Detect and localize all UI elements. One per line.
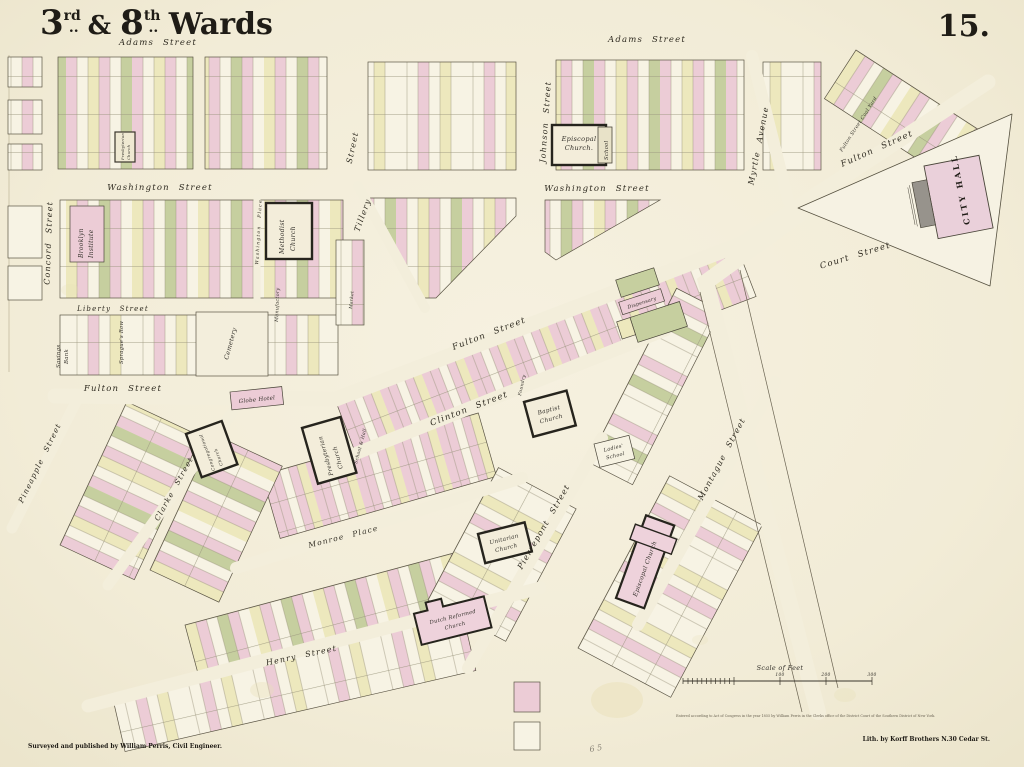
copyright-line: Entered according to Act of Congress in … (676, 714, 935, 718)
episcopal-church-north-label2: Church. (565, 144, 593, 152)
methodist-church-building (266, 203, 312, 259)
brooklyn-institute-label2: Institute (88, 229, 95, 259)
scale-tick-100: 100 (775, 673, 784, 678)
street-label-washington-west: Washington Street (107, 183, 212, 193)
street-label-liberty: Liberty Street (76, 305, 149, 313)
title-part: 8 (120, 3, 144, 43)
scale-label: Scale of Feet (757, 664, 804, 672)
city-block (8, 266, 42, 300)
city-block (368, 62, 516, 170)
lot (514, 682, 540, 712)
title-part: Wards (158, 7, 273, 42)
title-part: .. (69, 20, 79, 36)
title-part: & (79, 11, 121, 41)
city-block (8, 144, 42, 170)
methodist-church-label2: Church (290, 226, 297, 251)
spragues-row-label: Sprague's Row (119, 320, 125, 364)
street-label-washington-east: Washington Street (544, 184, 649, 194)
lithographer-credit: Lith. by Korff Brothers N.30 Cedar St. (863, 736, 990, 743)
presbyterian-church-north-label2: Church (127, 145, 131, 160)
savings-bank-label2: Bank (64, 349, 70, 365)
city-block (336, 240, 364, 325)
city-block (8, 57, 42, 87)
city-block (8, 100, 42, 134)
stain (692, 635, 708, 645)
scale-tick-200: 200 (820, 673, 830, 678)
street-label-fulton-west: Fulton Street (83, 384, 162, 394)
savings-bank-label: Savings (56, 345, 62, 368)
city-block (8, 206, 42, 258)
map-svg: Presbyterian Church Episcopal Church. Sc… (0, 0, 1024, 767)
plate-number: 15. (938, 9, 990, 44)
lot (514, 722, 540, 750)
stain (250, 682, 274, 698)
school-north-label: School (604, 140, 610, 160)
episcopal-church-north-label: Episcopal (561, 135, 597, 143)
city-block (205, 57, 327, 169)
scale-tick-300: 300 (867, 673, 876, 678)
stain (591, 682, 643, 718)
title-part: .. (149, 20, 159, 36)
map-sheet: Presbyterian Church Episcopal Church. Sc… (0, 0, 1024, 767)
presbyterian-church-north-label: Presbyterian (121, 133, 125, 161)
brooklyn-institute-building (70, 206, 104, 262)
stain (834, 688, 856, 702)
methodist-church-label: Methodist (279, 219, 286, 255)
surveyor-credit: Surveyed and published by William Perris… (28, 743, 222, 750)
street-label-adams-east: Adams Street (607, 35, 686, 45)
brooklyn-institute-label: Brooklyn (78, 228, 85, 259)
manufactory-label: Manufactory (274, 287, 281, 323)
presbyterian-church-north-building (115, 132, 135, 162)
title-part: 3 (40, 3, 64, 43)
stain (61, 284, 79, 296)
